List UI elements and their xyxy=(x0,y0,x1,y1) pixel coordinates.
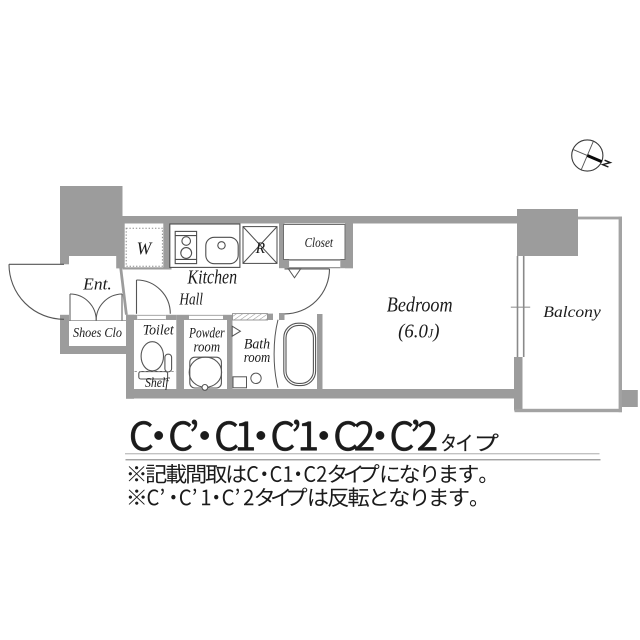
svg-text:room: room xyxy=(194,340,221,356)
svg-text:Balcony: Balcony xyxy=(543,304,601,321)
svg-text:Ent.: Ent. xyxy=(82,275,112,294)
svg-text:Shoes Clo: Shoes Clo xyxy=(73,326,122,341)
svg-text:Kitchen: Kitchen xyxy=(187,267,237,288)
svg-text:W: W xyxy=(137,238,153,258)
svg-text:Shelf: Shelf xyxy=(145,375,170,390)
svg-text:room: room xyxy=(244,350,271,366)
svg-text:Bedroom: Bedroom xyxy=(387,293,453,317)
svg-text:Closet: Closet xyxy=(305,235,334,250)
svg-text:Hall: Hall xyxy=(179,289,204,308)
svg-text:Toilet: Toilet xyxy=(143,323,175,339)
svg-text:R: R xyxy=(255,240,266,257)
svg-text:(6.0J): (6.0J) xyxy=(398,320,439,342)
